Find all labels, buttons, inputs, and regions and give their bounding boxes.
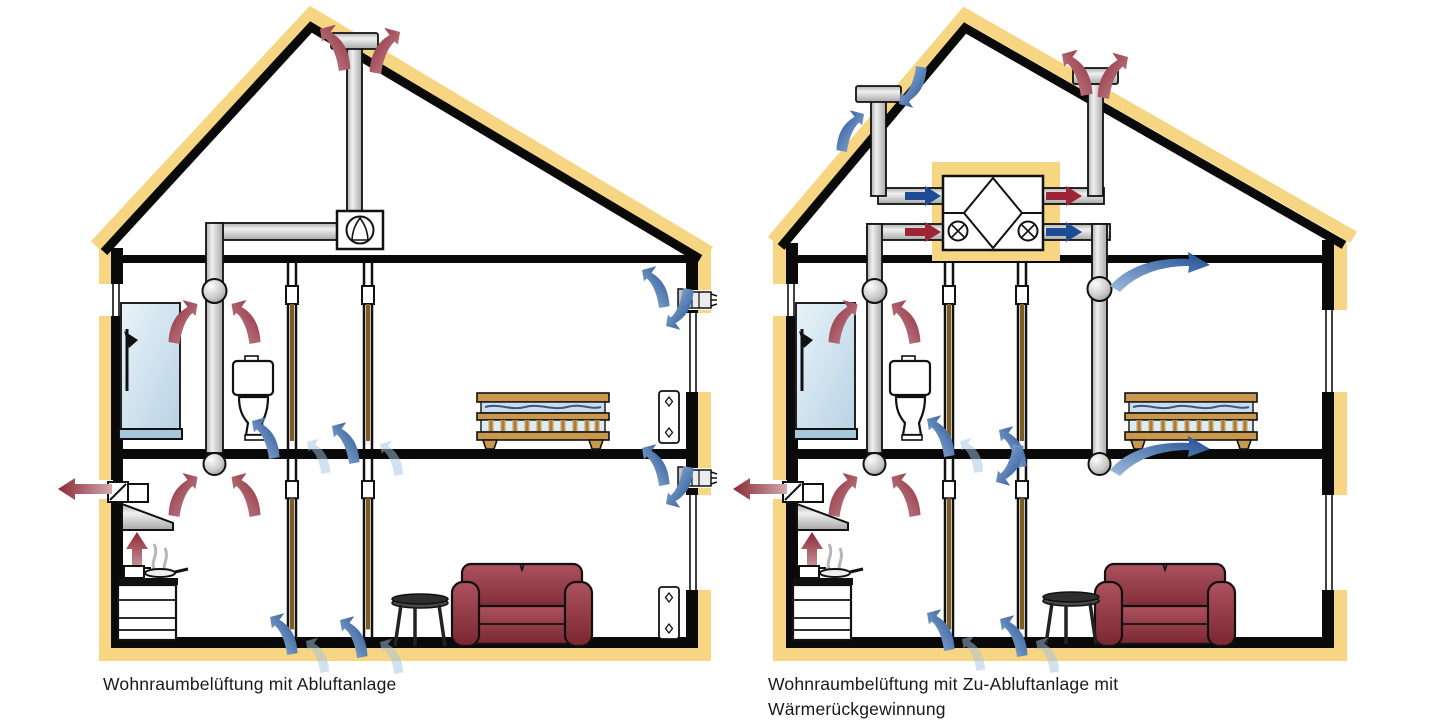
interior-door-upper-2 xyxy=(1016,263,1028,449)
toilet-icon xyxy=(890,356,930,440)
interior-door-upper-2 xyxy=(362,263,374,449)
caption-exhaust-system: Wohnraumbelüftung mit Abluftanlage xyxy=(103,672,663,697)
insulation-layer xyxy=(773,15,1348,661)
house-heat-recovery-system xyxy=(733,15,1349,673)
sofa-icon xyxy=(1095,564,1235,646)
sofa-icon xyxy=(452,564,592,646)
interior-door-ground-1 xyxy=(943,459,955,637)
exhaust-stack xyxy=(1088,84,1103,196)
interior-door-ground-1 xyxy=(286,459,298,637)
extract-valve-bathroom xyxy=(863,279,887,303)
insulation-layer xyxy=(99,14,711,661)
windows xyxy=(97,284,713,590)
shower-icon xyxy=(794,303,857,439)
supply-valve-bedroom xyxy=(1088,277,1112,301)
ground-floor xyxy=(786,637,1334,648)
window-bedroom xyxy=(682,313,713,392)
side-table-icon xyxy=(1043,592,1099,644)
window-bedroom xyxy=(1318,310,1349,392)
bed-icon xyxy=(477,393,609,449)
extract-riser xyxy=(867,224,882,453)
window-livingroom xyxy=(682,495,713,590)
attic-floor xyxy=(111,255,698,263)
radiator-upper-icon xyxy=(659,391,679,443)
radiator-lower-icon xyxy=(659,587,679,639)
supply-riser xyxy=(1092,224,1107,455)
house-exhaust-system xyxy=(58,14,717,674)
window-livingroom xyxy=(1318,495,1349,590)
ground-floor xyxy=(111,637,698,648)
house-structure xyxy=(781,28,1344,648)
extract-valve-ground xyxy=(204,453,226,475)
interior-door-upper-1 xyxy=(286,263,298,449)
extract-valve-bathroom xyxy=(203,279,227,303)
interior-door-ground-2 xyxy=(362,459,374,637)
shower-icon xyxy=(119,303,182,439)
exhaust-fan-unit xyxy=(337,211,383,249)
interior-door-upper-1 xyxy=(943,263,955,449)
supply-valve-livingroom xyxy=(1089,453,1111,475)
intake-stack xyxy=(871,96,886,196)
extract-valve-ground xyxy=(864,453,886,475)
caption-heat-recovery-system: Wohnraumbelüftung mit Zu-Abluftanlage mi… xyxy=(768,672,1368,721)
interior-door-ground-2 xyxy=(1016,459,1028,637)
heat-exchanger-unit xyxy=(943,176,1043,250)
house-structure xyxy=(104,27,700,648)
heat-recovery-ductwork xyxy=(856,68,1118,475)
toilet-icon xyxy=(233,356,273,440)
diagram-canvas xyxy=(0,0,1440,726)
ventilation-diagram: Wohnraumbelüftung mit Abluftanlage Wohnr… xyxy=(0,0,1440,726)
intake-cap xyxy=(856,86,901,102)
